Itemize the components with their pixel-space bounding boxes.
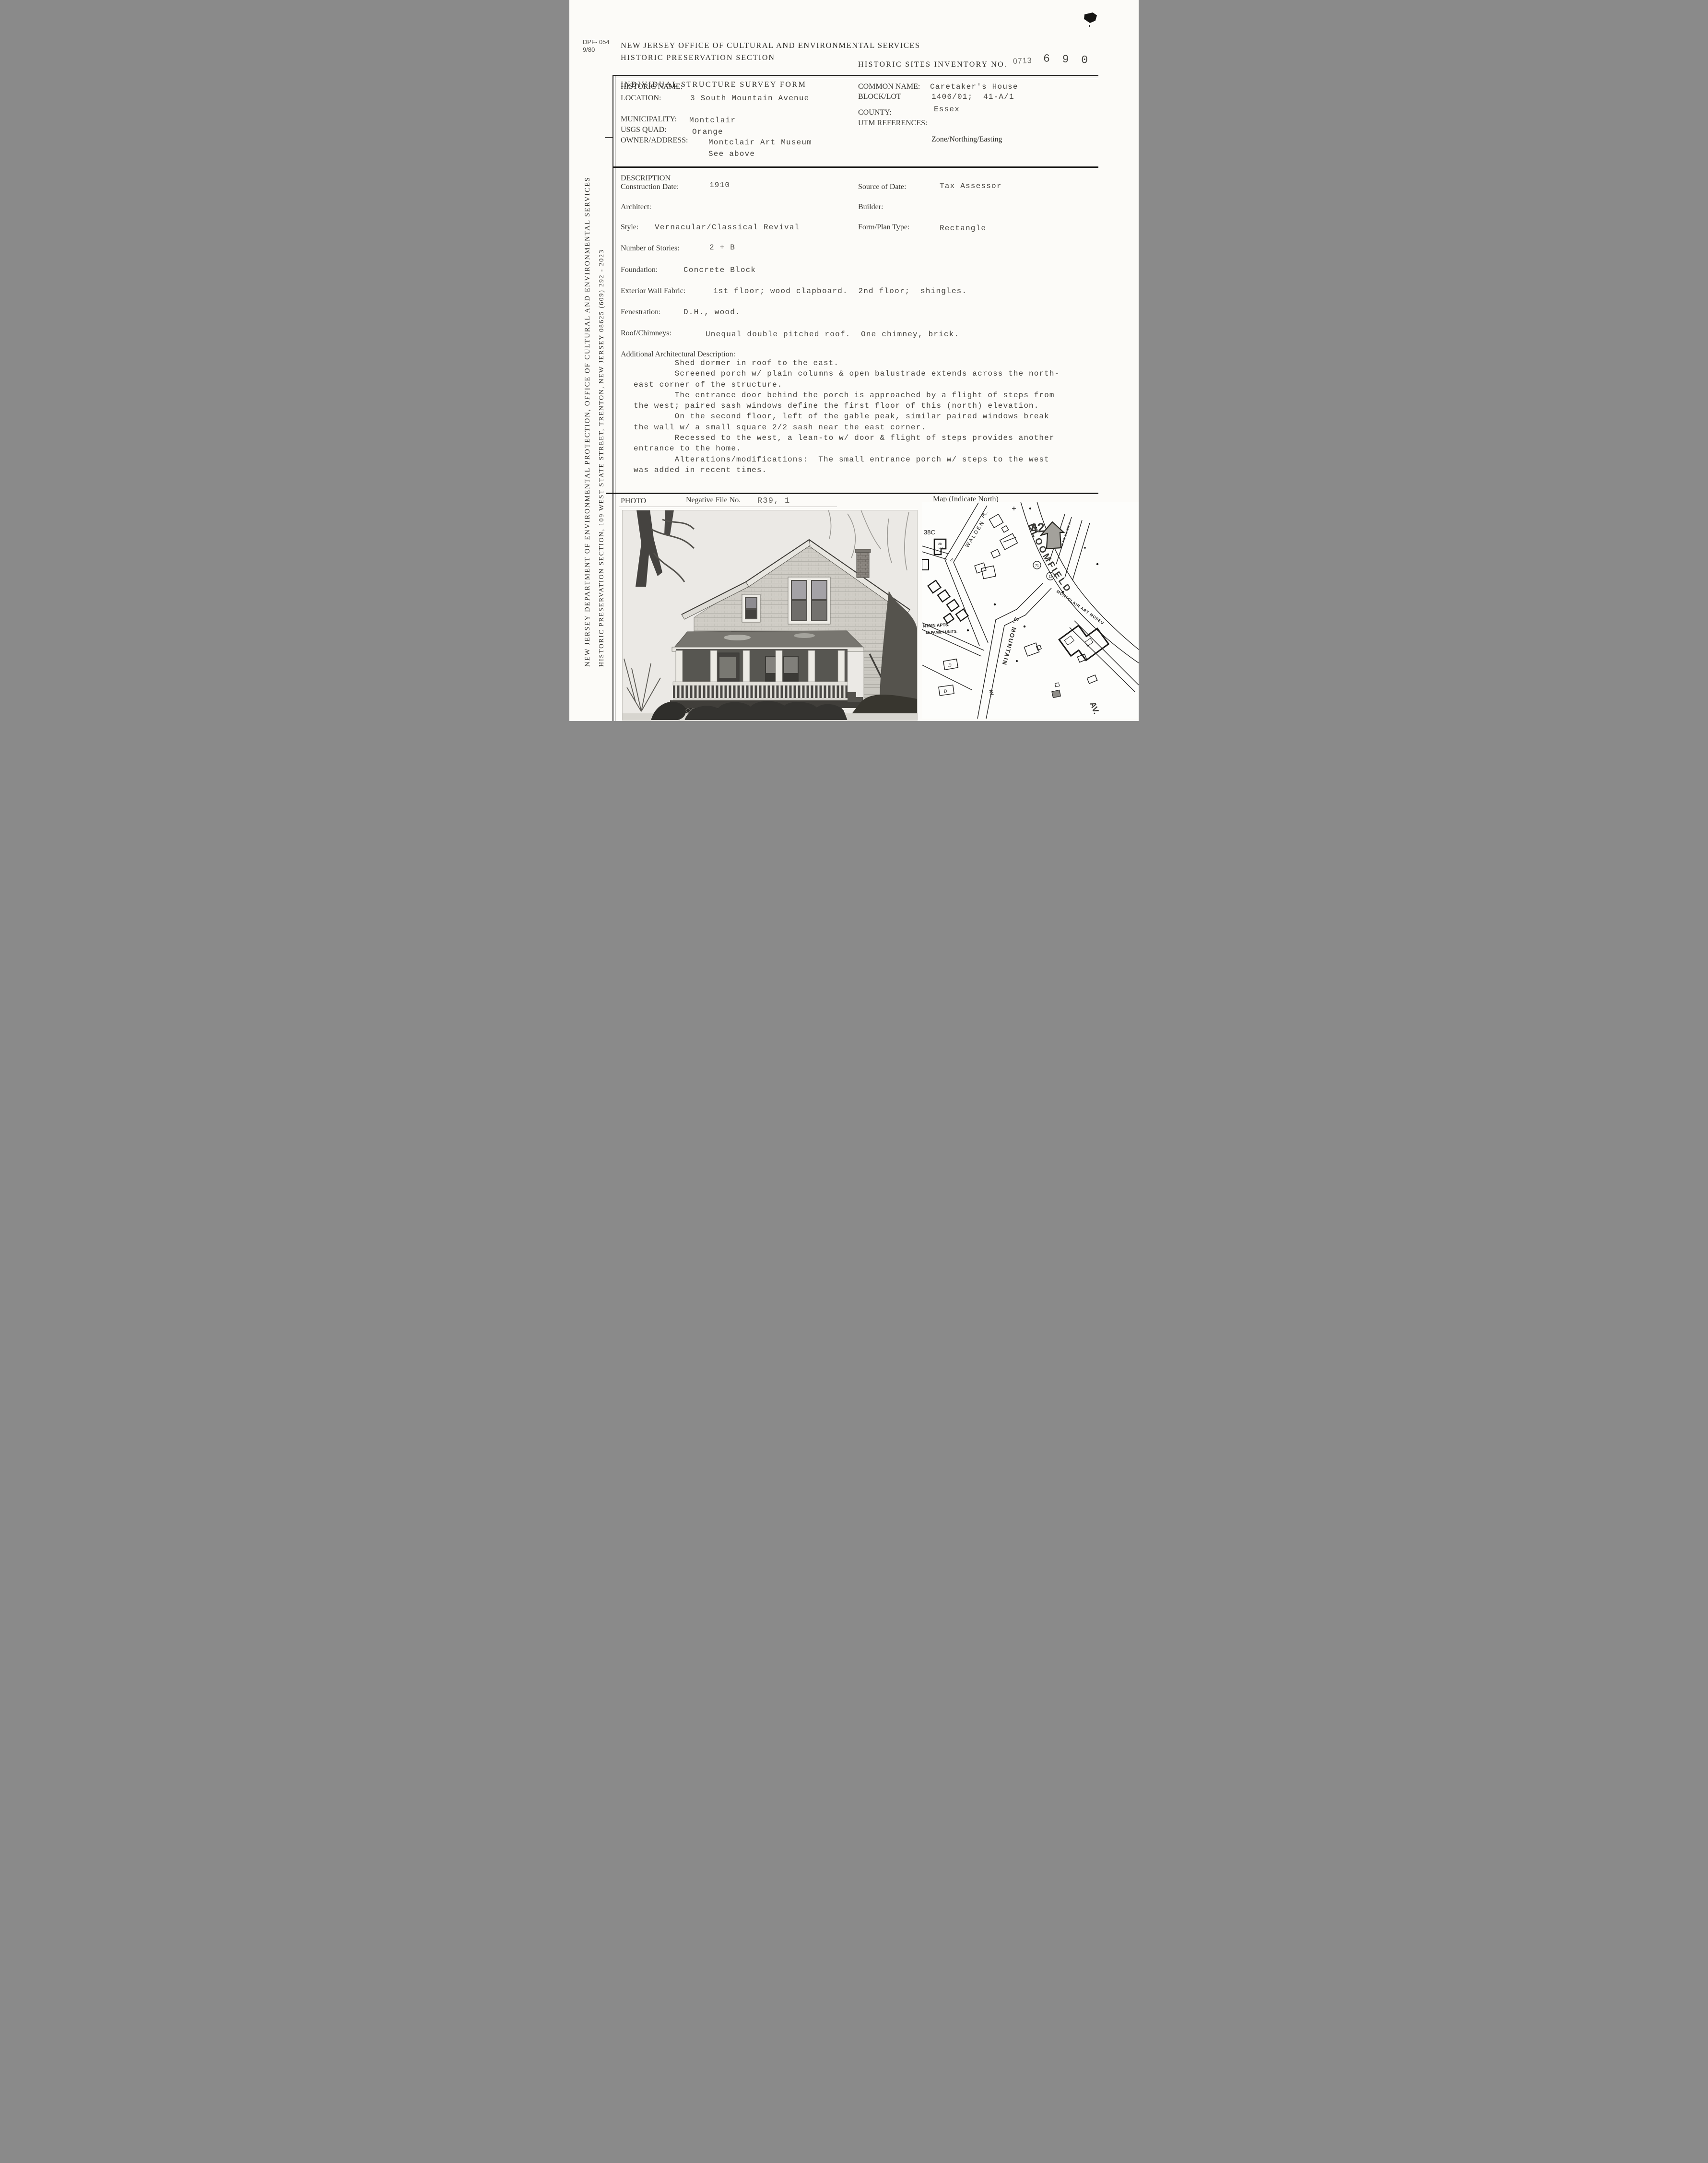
style-value: Vernacular/Classical Revival (655, 223, 800, 232)
location-label: LOCATION: (621, 94, 661, 103)
negative-file-label: Negative File No. (686, 496, 741, 505)
owner-address-value1: Montclair Art Museum (708, 138, 812, 147)
utm-references-label: UTM REFERENCES: (858, 119, 927, 128)
photo-label: PHOTO (621, 497, 646, 506)
form-number: DPF- 054 (583, 38, 610, 46)
map-d-mark-2: D (943, 689, 947, 694)
architect-label: Architect: (621, 203, 651, 212)
scan-artifact-dot (1089, 25, 1090, 27)
map-lot-5d: 5-D (938, 547, 943, 550)
stories-label: Number of Stories: (621, 244, 680, 253)
agency-title-line1: NEW JERSEY OFFICE OF CULTURAL AND ENVIRO… (621, 41, 920, 50)
description-section-rule (613, 166, 1098, 168)
roof-chimneys-label: Roof/Chimneys: (621, 329, 671, 338)
utm-zone-sublabel: Zone/Northing/Easting (931, 135, 1002, 144)
sidebar-agency-line2: HISTORIC PRESERVATION SECTION, 109 WEST … (598, 164, 606, 667)
inventory-number-label: HISTORIC SITES INVENTORY NO. (858, 60, 1007, 69)
form-revision: 9/80 (583, 46, 595, 53)
wall-fabric-label: Exterior Wall Fabric: (621, 287, 685, 295)
form-plan-value: Rectangle (940, 224, 986, 233)
inventory-prefix: 0713 (1013, 57, 1032, 66)
block-lot-label: BLOCK/LOT (858, 93, 901, 101)
header-rule-top (613, 75, 1098, 76)
owner-address-value2: See above (708, 150, 755, 158)
construction-date-label: Construction Date: (621, 183, 679, 191)
form-plan-label: Form/Plan Type: (858, 223, 909, 232)
survey-form-page: DPF- 054 9/80 NEW JERSEY OFFICE OF CULTU… (569, 0, 1139, 721)
county-value: Essex (934, 105, 960, 114)
source-of-date-label: Source of Date: (858, 183, 906, 191)
left-tick (605, 137, 613, 138)
description-section-label: DESCRIPTION (621, 174, 671, 183)
header-rule-bottom (613, 78, 1098, 78)
fenestration-value: D.H., wood. (683, 308, 741, 317)
municipality-value: Montclair (689, 116, 736, 125)
map-lot-28: 28 (938, 543, 942, 546)
source-of-date-value: Tax Assessor (940, 182, 1002, 190)
historic-name-label: HISTORIC NAME: (621, 83, 683, 91)
agency-title-line2: HISTORIC PRESERVATION SECTION (621, 54, 775, 62)
style-label: Style: (621, 223, 638, 232)
construction-date-value: 1910 (709, 181, 730, 189)
foundation-value: Concrete Block (683, 266, 756, 274)
foundation-label: Foundation: (621, 266, 658, 274)
usgs-quad-label: USGS QUAD: (621, 126, 667, 134)
usgs-quad-value: Orange (692, 128, 723, 136)
additional-description-text: Shed dormer in roof to the east. Screene… (634, 358, 1104, 475)
photo-section-rule (606, 493, 1098, 494)
house-photo (622, 510, 918, 721)
sidebar-agency-line1: NEW JERSEY DEPARTMENT OF ENVIRONMENTAL P… (584, 129, 592, 667)
negative-file-underline (619, 507, 837, 507)
roof-chimneys-value: Unequal double pitched roof. One chimney… (706, 330, 959, 339)
wall-fabric-value: 1st floor; wood clapboard. 2nd floor; sh… (713, 287, 967, 295)
map-d-mark-1: D (948, 663, 952, 668)
builder-label: Builder: (858, 203, 883, 212)
stories-value: 2 + B (709, 243, 735, 252)
common-name-label: COMMON NAME: (858, 83, 920, 91)
block-lot-value: 1406/01; 41-A/1 (931, 93, 1014, 101)
left-margin-rule-outer (613, 75, 613, 721)
owner-address-label: OWNER/ADDRESS: (621, 136, 688, 145)
scan-artifact-blob (1084, 12, 1097, 23)
common-name-value: Caretaker's House (930, 83, 1018, 91)
location-map: 42 71 12 38C WALDEN PL. TH BLOOMFIELD AV… (922, 502, 1139, 719)
negative-file-value: R39, 1 (757, 496, 790, 506)
county-label: COUNTY: (858, 108, 892, 117)
municipality-label: MUNICIPALITY: (621, 115, 677, 124)
left-margin-rule-inner (615, 75, 615, 721)
map-corner-ref: 38C (924, 529, 935, 536)
map-circled-number-1: 71 (1035, 564, 1039, 567)
fenestration-label: Fenestration: (621, 308, 661, 317)
location-value: 3 South Mountain Avenue (690, 94, 809, 103)
inventory-stamp-number: 6 9 0 (1043, 52, 1091, 66)
